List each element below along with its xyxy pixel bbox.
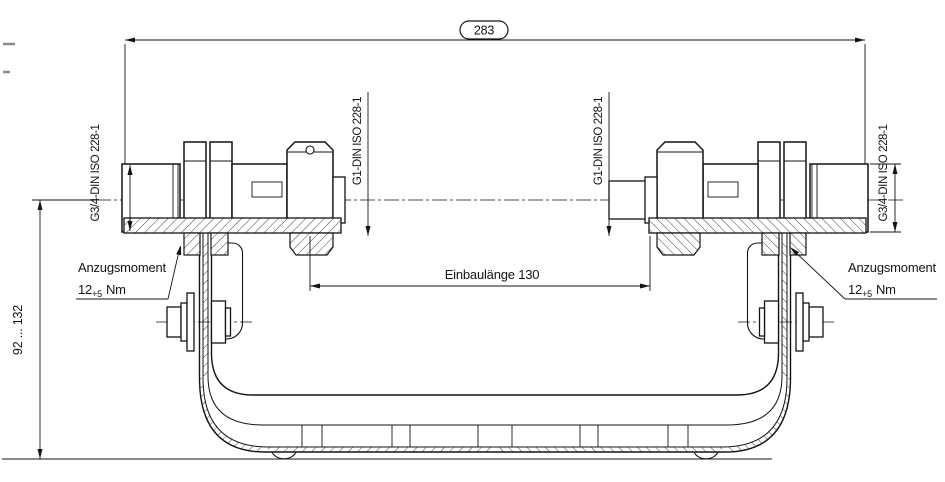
right-fitting: [645, 142, 868, 255]
svg-text:12+5Nm: 12+5Nm: [78, 282, 126, 299]
torque-note-left: Anzugsmoment 12+5Nm: [76, 245, 181, 299]
svg-text:Anzugsmoment: Anzugsmoment: [848, 260, 937, 275]
margin-marks: [3, 44, 15, 72]
thread-label-outer-right: G3/4-DIN ISO 228-1: [878, 125, 890, 222]
svg-text:12+5Nm: 12+5Nm: [848, 282, 896, 299]
height-range-label: 92 ... 132: [11, 305, 25, 355]
torque-note-right: Anzugsmoment 12+5Nm: [790, 247, 937, 299]
overall-width-value: 283: [474, 24, 495, 38]
dimension-installation-length: [310, 236, 650, 291]
dimension-overall-width: [125, 21, 865, 164]
thread-label-outer-left: G3/4-DIN ISO 228-1: [90, 125, 102, 222]
installation-length-label: Einbaulänge 130: [445, 267, 540, 282]
svg-text:Anzugsmoment: Anzugsmoment: [78, 260, 167, 275]
technical-drawing: 283 Einbaulänge 130 G3/4-DIN ISO 228-1 G…: [0, 0, 945, 482]
dimension-height-range: [38, 200, 43, 459]
right-fitting-stub: [609, 181, 648, 219]
union-nut-hole: [306, 146, 314, 154]
thread-label-inner-left: G1-DIN ISO 228-1: [352, 97, 364, 185]
leader-thread-inner-left: [366, 92, 371, 236]
left-fitting: [122, 142, 345, 255]
mounting-bracket-right-half: [495, 233, 834, 459]
drawing-canvas: 283 Einbaulänge 130 G3/4-DIN ISO 228-1 G…: [0, 0, 945, 482]
thread-label-inner-right: G1-DIN ISO 228-1: [593, 97, 605, 185]
